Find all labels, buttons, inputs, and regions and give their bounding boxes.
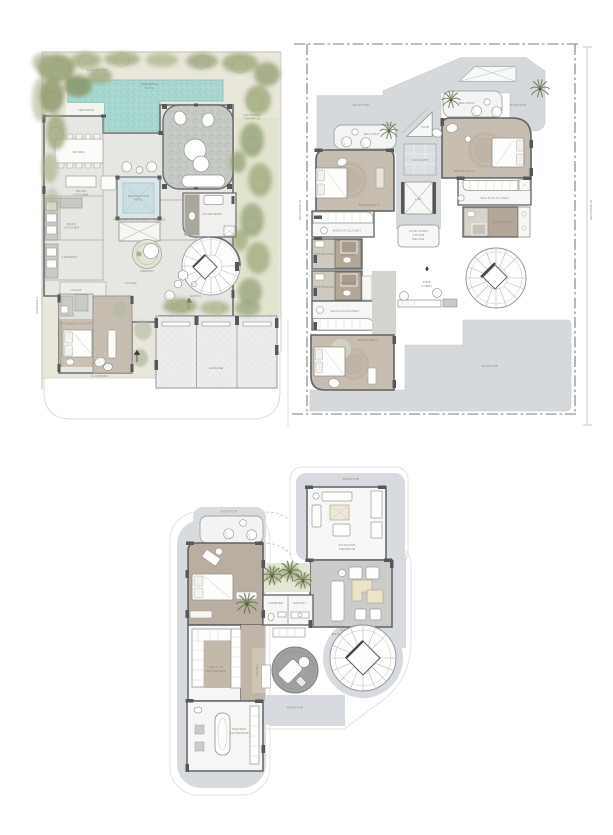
svg-text:NEIGHBOUR: NEIGHBOUR [298, 199, 302, 220]
svg-text:BELOW: BELOW [412, 237, 424, 241]
svg-text:DINING: DINING [73, 150, 85, 154]
svg-text:ROOFTOP: ROOFTOP [482, 364, 499, 368]
svg-text:BATHROOM: BATHROOM [314, 285, 333, 289]
svg-text:WARDROBE: WARDROBE [206, 669, 226, 673]
svg-text:ENTRY: ENTRY [190, 294, 201, 298]
svg-text:ROOFTOP: ROOFTOP [221, 510, 238, 514]
svg-text:PANTRY: PANTRY [293, 601, 306, 605]
svg-text:LIFT: LIFT [415, 197, 422, 201]
svg-text:POWDER: POWDER [268, 601, 284, 605]
svg-text:NEIGHBOUR: NEIGHBOUR [589, 199, 593, 220]
svg-text:ROOFTOP: ROOFTOP [353, 103, 370, 107]
svg-text:ROOFTOP: ROOFTOP [343, 477, 360, 481]
svg-text:TOILET: TOILET [70, 288, 82, 292]
svg-text:WALK-IN CLOSET: WALK-IN CLOSET [333, 229, 362, 233]
svg-text:TOILETRIES: TOILETRIES [202, 212, 222, 216]
svg-text:SIDEWALK: SIDEWALK [35, 296, 39, 314]
svg-text:LAUNDRY: LAUNDRY [62, 255, 78, 259]
svg-text:BEDROOM 2: BEDROOM 2 [454, 169, 474, 173]
svg-text:POOL: POOL [134, 198, 143, 202]
svg-text:HIS&HERS CLOSET: HIS&HERS CLOSET [61, 322, 93, 326]
svg-text:POOL: POOL [145, 86, 154, 90]
svg-text:SKYLIGHT: SKYLIGHT [412, 158, 429, 162]
svg-text:GARAGE: GARAGE [209, 366, 223, 370]
svg-text:KITCHEN: KITCHEN [65, 226, 80, 230]
svg-text:POWDER ROOM VANITY GLASS: POWDER ROOM VANITY GLASS [113, 218, 165, 222]
svg-text:FOYER: FOYER [255, 664, 259, 676]
svg-text:SHOWER: SHOWER [340, 253, 356, 257]
svg-text:TERRACE: TERRACE [244, 117, 260, 121]
svg-text:FLOORING: FLOORING [91, 374, 109, 378]
svg-text:BATHROOM: BATHROOM [314, 252, 333, 256]
svg-text:VOID: VOID [421, 125, 430, 129]
svg-text:BEDROOM 3: BEDROOM 3 [359, 203, 379, 207]
svg-text:ROOFTOP: ROOFTOP [510, 103, 527, 107]
svg-text:TERRACE: TERRACE [339, 547, 355, 551]
svg-text:BALCONY: BALCONY [459, 101, 475, 105]
svg-text:FOYER: FOYER [125, 281, 137, 285]
svg-text:SHOWER: SHOWER [340, 281, 356, 285]
svg-text:BATHROOM: BATHROOM [493, 220, 512, 224]
svg-text:WALK-IN-CLOSET: WALK-IN-CLOSET [481, 196, 510, 200]
svg-text:LIBRARY: LIBRARY [140, 269, 155, 273]
svg-text:BALCONY: BALCONY [364, 132, 380, 136]
svg-text:TERRACE: TERRACE [78, 108, 94, 112]
svg-text:WALK-IN-CLOSET: WALK-IN-CLOSET [331, 309, 360, 313]
svg-text:LOBBY: LOBBY [421, 284, 432, 288]
svg-text:ROOFTOP: ROOFTOP [287, 706, 304, 710]
svg-text:BATHROOM: BATHROOM [229, 731, 248, 735]
svg-text:KITCHEN: KITCHEN [74, 193, 89, 197]
svg-text:BEDROOM 1: BEDROOM 1 [358, 338, 378, 342]
